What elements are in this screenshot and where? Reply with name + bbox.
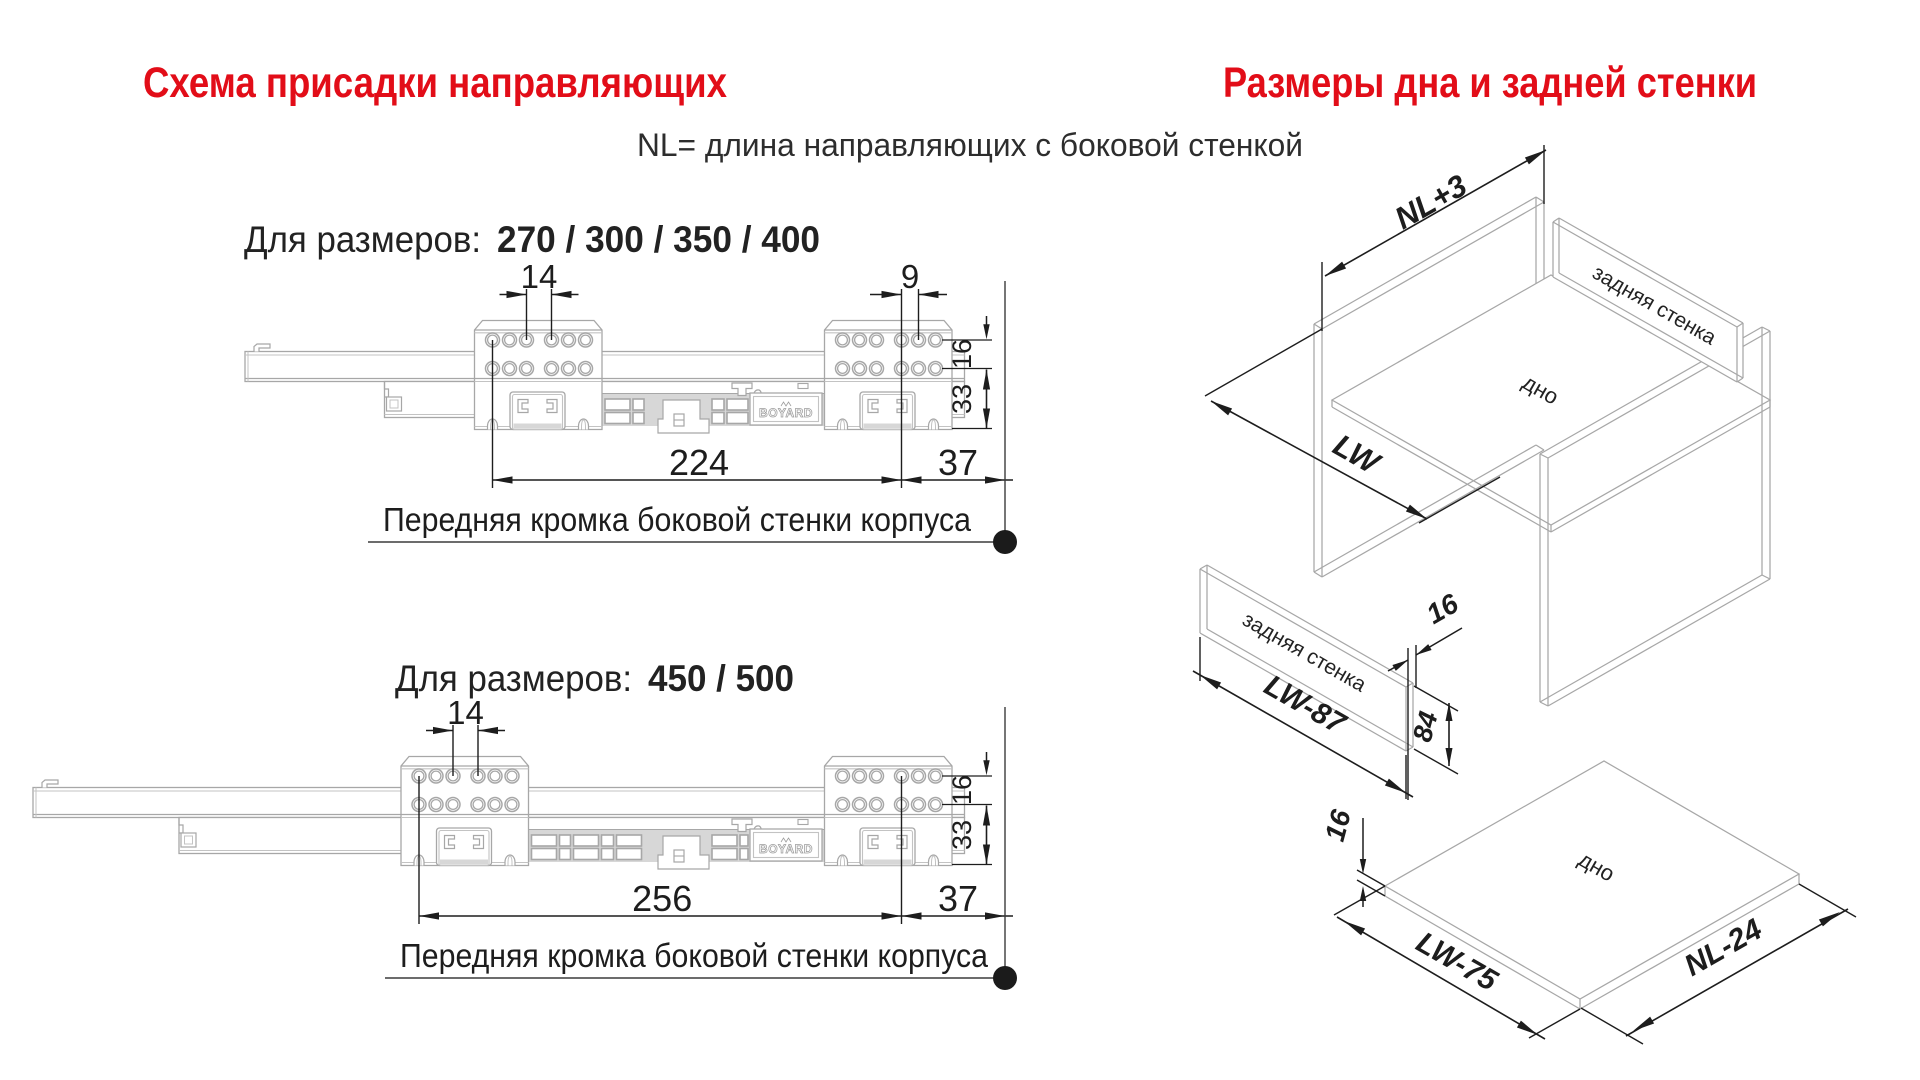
svg-text:Размеры дна и задней стенки: Размеры дна и задней стенки — [1223, 59, 1757, 107]
svg-text:BOYARD: BOYARD — [759, 842, 813, 856]
svg-text:450 / 500: 450 / 500 — [648, 658, 794, 699]
svg-text:37: 37 — [938, 442, 978, 483]
svg-text:NL= длина направляющих с боков: NL= длина направляющих с боковой стенкой — [637, 127, 1303, 163]
svg-text:16: 16 — [947, 339, 977, 369]
svg-text:16: 16 — [947, 775, 977, 805]
svg-text:Для размеров:: Для размеров: — [244, 219, 481, 260]
svg-text:14: 14 — [521, 258, 558, 295]
svg-text:BOYARD: BOYARD — [759, 406, 813, 420]
svg-text:Передняя кромка боковой стенки: Передняя кромка боковой стенки корпуса — [383, 501, 972, 538]
svg-text:224: 224 — [669, 442, 729, 483]
svg-text:Схема присадки направляющих: Схема присадки направляющих — [143, 59, 727, 107]
svg-text:Передняя кромка боковой стенки: Передняя кромка боковой стенки корпуса — [400, 937, 989, 974]
svg-text:14: 14 — [447, 694, 484, 731]
svg-text:256: 256 — [632, 878, 692, 919]
svg-text:270 / 300 / 350 / 400: 270 / 300 / 350 / 400 — [497, 219, 820, 260]
svg-text:37: 37 — [938, 878, 978, 919]
svg-text:33: 33 — [947, 384, 977, 414]
svg-text:Для размеров:: Для размеров: — [395, 658, 632, 699]
svg-text:9: 9 — [901, 258, 919, 295]
svg-text:33: 33 — [947, 820, 977, 850]
